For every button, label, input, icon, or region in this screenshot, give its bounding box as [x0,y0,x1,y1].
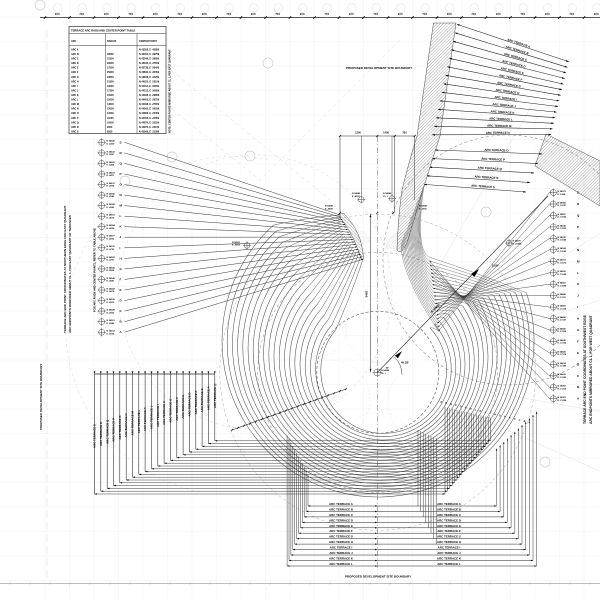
svg-text:700: 700 [569,12,574,16]
svg-text:15000: 15000 [107,99,114,102]
svg-text:700: 700 [128,12,133,16]
svg-text:N 54480: N 54480 [558,293,567,296]
svg-text:ARC H: ARC H [71,80,79,83]
svg-text:700: 700 [422,12,427,16]
svg-text:N 54626: N 54626 [107,161,116,164]
svg-text:ARC A: ARC A [71,49,79,52]
svg-text:L: L [120,214,122,218]
svg-text:ARC TERRACE D: ARC TERRACE D [188,393,192,417]
svg-text:N 54563: N 54563 [107,256,116,259]
svg-text:N 54640: N 54640 [383,192,392,195]
svg-text:ARC TERRACE L: ARC TERRACE L [437,562,461,566]
svg-text:H: H [120,256,122,260]
svg-text:700: 700 [177,12,182,16]
svg-text:N 54579: N 54579 [513,240,522,243]
svg-text:N 54568: N 54568 [558,201,567,204]
svg-text:S: S [120,140,122,144]
svg-text:ARC TERRACE D: ARC TERRACE D [329,518,353,522]
svg-text:E -11020: E -11020 [558,217,568,219]
svg-text:940: 940 [594,12,599,16]
svg-text:N 54524: N 54524 [558,247,567,250]
svg-text:E: E [120,288,122,292]
svg-text:12000: 12000 [107,112,114,115]
svg-text:E -11111: E -11111 [558,297,567,299]
svg-text:N: N [577,248,579,252]
svg-text:N 54640: N 54640 [107,140,116,143]
svg-text:940: 940 [104,12,109,16]
svg-text:E -11059: E -11059 [558,251,568,253]
svg-text:E -4730: E -4730 [107,248,115,251]
svg-text:940: 940 [545,12,550,16]
svg-text:11000: 11000 [107,117,114,120]
svg-text:E -11176: E -11176 [558,354,567,356]
svg-text:ARC TERRACE C: ARC TERRACE C [437,513,462,517]
svg-text:940: 940 [251,12,256,16]
svg-text:E -4434: E -4434 [107,164,115,167]
svg-text:P: P [120,172,122,176]
svg-text:ARC TERRACE D: ARC TERRACE D [437,518,461,522]
svg-text:N 54502: N 54502 [558,270,567,273]
svg-text:N 54535: N 54535 [558,236,567,239]
svg-text:E -11098: E -11098 [558,285,568,287]
svg-text:E -4878: E -4878 [107,290,115,293]
svg-text:ARC ENDPOINTS MIRRORED ABOUT C: ARC ENDPOINTS MIRRORED ABOUT CL 1, FOR W… [589,314,593,424]
svg-text:N 45068, E -21059: N 45068, E -21059 [139,130,160,133]
svg-text:NOTE: CENTER POINTS MIRRORED A: NOTE: CENTER POINTS MIRRORED ABOUT CL 1,… [169,49,172,133]
svg-text:E -4582: E -4582 [107,206,115,209]
svg-text:E -1994: E -1994 [558,193,566,196]
svg-text:700: 700 [402,131,407,135]
svg-text:8500: 8500 [107,130,113,133]
svg-text:ARC O: ARC O [71,112,79,115]
svg-text:E -11215: E -11215 [558,388,568,390]
svg-text:ARC TERRACE J: ARC TERRACE J [150,405,154,429]
svg-text:ARC F: ARC F [71,71,79,74]
svg-text:ARC TERRACE K: ARC TERRACE K [437,557,462,561]
svg-text:ARC TERRACE G: ARC TERRACE G [329,535,354,539]
svg-text:L: L [577,271,579,275]
svg-text:N 44308, E -29859: N 44308, E -29859 [139,94,160,97]
svg-text:ARC TERRACE S: ARC TERRACE S [93,424,97,448]
svg-text:N 44403, E -28759: N 44403, E -28759 [139,99,160,102]
svg-text:ARC TERRACE A: ARC TERRACE A [329,502,354,506]
svg-text:700: 700 [520,12,525,16]
svg-text:ARC TERRACE I: ARC TERRACE I [330,546,353,550]
svg-text:N 54491: N 54491 [558,282,567,285]
svg-text:ARC TERRACE K: ARC TERRACE K [143,406,147,431]
svg-text:ARC J: ARC J [71,89,79,92]
svg-text:F: F [577,339,579,343]
svg-text:N 54447: N 54447 [558,327,567,330]
svg-text:13000: 13000 [107,108,114,111]
svg-text:ARC: ARC [71,40,76,43]
svg-text:ARC TERRACE H: ARC TERRACE H [437,540,461,544]
svg-text:E -11137: E -11137 [558,320,567,322]
svg-text:E -11189: E -11189 [558,366,567,368]
svg-text:E -3660: E -3660 [419,208,427,210]
svg-text:ARC TERRACE K: ARC TERRACE K [329,557,354,561]
svg-text:1200: 1200 [355,131,361,135]
svg-text:E -11046: E -11046 [558,239,568,242]
svg-text:ARC K: ARC K [71,94,79,97]
svg-text:21300: 21300 [107,80,114,83]
svg-text:E -4360: E -4360 [107,143,115,146]
svg-text:N 54425: N 54425 [558,350,567,353]
svg-text:29000: 29000 [107,62,114,65]
svg-text:45°: 45° [386,367,389,370]
svg-text:N 44688, E -25459: N 44688, E -25459 [139,112,160,115]
svg-text:N 54577: N 54577 [107,235,116,238]
svg-text:N 54557: N 54557 [558,213,567,216]
svg-text:N 54521: N 54521 [107,319,116,322]
svg-text:700: 700 [324,12,329,16]
svg-text:CL 1: CL 1 [383,196,388,198]
svg-text:N 43738, E -36459: N 43738, E -36459 [139,67,160,70]
svg-text:N 54513: N 54513 [558,259,567,262]
svg-text:N 54584: N 54584 [107,224,116,227]
svg-text:N 54514: N 54514 [107,330,116,333]
svg-text:H: H [577,317,579,321]
svg-text:N 54469: N 54469 [558,305,567,308]
svg-text:E -11124: E -11124 [558,307,567,310]
svg-text:ARC I: ARC I [71,85,78,88]
svg-text:N 54598: N 54598 [107,203,116,206]
svg-text:ARC TERRACE B: ARC TERRACE B [200,388,204,412]
svg-text:E -4471: E -4471 [107,174,115,177]
svg-text:N 54403: N 54403 [558,373,567,376]
svg-text:15.00°: 15.00° [492,265,499,268]
svg-text:14000: 14000 [107,103,114,106]
svg-text:ARC Q: ARC Q [71,121,79,124]
svg-text:P: P [577,225,579,229]
svg-text:N 43833, E -35359: N 43833, E -35359 [139,71,160,74]
svg-text:N 54619: N 54619 [107,171,116,174]
svg-text:ARC TERRACE N: ARC TERRACE N [486,131,510,135]
svg-text:ARC TERRACE G: ARC TERRACE G [437,535,462,539]
svg-text:17300: 17300 [107,89,114,92]
svg-text:ARC TERRACE E: ARC TERRACE E [329,524,353,528]
svg-text:N: N [120,193,122,197]
svg-text:PROPOSED DEVELOPMENT SITE BOUN: PROPOSED DEVELOPMENT SITE BOUNDARY [39,364,43,430]
svg-text:E -11072: E -11072 [558,263,568,265]
svg-text:S: S [577,191,579,195]
svg-text:E -4508: E -4508 [107,185,115,188]
svg-text:ARC TERRACE M: ARC TERRACE M [131,411,135,436]
svg-text:940: 940 [398,12,403,16]
svg-text:TERRACE ARC END POINT COORDINA: TERRACE ARC END POINT COORDINATES AT SOU… [583,314,587,424]
svg-text:N 54605: N 54605 [107,193,116,196]
svg-text:27300: 27300 [107,67,114,70]
svg-text:E -4841: E -4841 [107,280,115,283]
svg-text:E -4693: E -4693 [107,237,115,240]
svg-text:N 44213, E -30959: N 44213, E -30959 [139,89,160,92]
svg-text:700: 700 [79,12,84,16]
svg-text:ARC TERRACE E: ARC TERRACE E [181,395,185,419]
svg-text:ARC TERRACE L: ARC TERRACE L [329,562,353,566]
svg-text:N 43928, E -34259: N 43928, E -34259 [139,76,160,79]
svg-text:ARC TERRACE C: ARC TERRACE C [329,513,354,517]
svg-text:ARC TERRACE C: ARC TERRACE C [194,390,198,415]
svg-text:N 54458: N 54458 [558,316,567,319]
svg-text:23000: 23000 [107,76,114,79]
svg-text:ARC TERRACE B: ARC TERRACE B [329,507,353,511]
svg-text:E -4360: E -4360 [352,195,360,198]
svg-text:ARC S: ARC S [71,130,79,133]
svg-text:E -4545: E -4545 [107,195,115,198]
svg-text:940: 940 [153,12,158,16]
svg-text:N 54556: N 54556 [107,266,116,269]
svg-text:CL 1: CL 1 [381,373,386,375]
svg-text:ARC TERRACE H: ARC TERRACE H [162,401,166,425]
svg-text:ARC TERRACE B: ARC TERRACE B [437,507,461,511]
svg-text:ARC TERRACE A: ARC TERRACE A [207,385,211,410]
svg-text:45.28°: 45.28° [401,361,409,365]
svg-text:ARC TERRACE I: ARC TERRACE I [438,546,461,550]
svg-text:25300: 25300 [107,71,114,74]
svg-text:PROPOSED DEVELOPMENT SITE BOUN: PROPOSED DEVELOPMENT SITE BOUNDARY [345,575,411,579]
svg-text:10000: 10000 [107,121,114,124]
svg-text:N 44878, E -23259: N 44878, E -23259 [139,121,160,124]
svg-text:N 44783, E -24359: N 44783, E -24359 [139,117,160,120]
svg-text:940: 940 [55,12,60,16]
svg-text:ARC TERRACE Q: ARC TERRACE Q [105,419,109,444]
svg-text:E -11150: E -11150 [558,331,567,333]
svg-text:ARC TERRACE A: ARC TERRACE A [437,502,462,506]
svg-text:700: 700 [471,12,476,16]
svg-text:N 54535: N 54535 [107,298,116,301]
svg-text:ARC P: ARC P [71,117,79,120]
svg-text:PROPOSED DEVELOPMENT SITE BOUN: PROPOSED DEVELOPMENT SITE BOUNDARY [346,66,412,70]
svg-text:ARC D: ARC D [71,62,79,65]
svg-text:N 44973, E -22159: N 44973, E -22159 [139,126,160,129]
svg-text:ARC B: ARC B [71,53,79,56]
svg-text:ARC TERRACE L: ARC TERRACE L [137,409,141,433]
svg-text:TERRACE ARC RADII AND CENTER P: TERRACE ARC RADII AND CENTER POINT TABLE [71,29,135,33]
svg-text:E -11007: E -11007 [558,205,568,207]
svg-text:ARC TERRACE O: ARC TERRACE O [118,415,122,440]
svg-text:TERRACE ARC END POINT COORDINA: TERRACE ARC END POINT COORDINATES AT NOR… [63,205,67,333]
svg-text:ARC TERRACE J: ARC TERRACE J [329,551,353,555]
svg-text:E -11228: E -11228 [558,400,568,402]
svg-text:E -4952: E -4952 [107,311,115,314]
svg-text:ARC R: ARC R [71,126,79,129]
svg-text:N 54392: N 54392 [558,385,567,388]
svg-text:ARC L: ARC L [71,99,79,102]
svg-text:15000: 15000 [107,94,114,97]
svg-text:E -4915: E -4915 [107,301,115,304]
svg-text:N 54640: N 54640 [352,192,361,195]
svg-text:FOR ARC RADII AND CENTER POINT: FOR ARC RADII AND CENTER POINTS, REFER T… [93,228,97,312]
svg-text:N 44593, E -26559: N 44593, E -26559 [139,108,160,111]
svg-text:N 43358, E -40859: N 43358, E -40859 [139,49,160,52]
svg-text:N 54381: N 54381 [558,396,567,399]
svg-text:N 54612: N 54612 [107,182,116,185]
svg-text:ARC TERRACE P: ARC TERRACE P [112,418,116,442]
svg-text:700: 700 [275,12,280,16]
svg-text:ARC ENDPOINTS MIRRORED ABOUT C: ARC ENDPOINTS MIRRORED ABOUT CL 1, FOR E… [68,215,72,333]
svg-text:N 54547: N 54547 [325,205,334,208]
svg-text:ARC M: ARC M [71,103,79,106]
svg-text:ARC TERRACE N: ARC TERRACE N [124,414,128,438]
svg-text:N 54591: N 54591 [107,214,116,217]
svg-text:ARC TERRACE F: ARC TERRACE F [437,529,461,533]
svg-text:9000: 9000 [107,126,113,129]
svg-text:700: 700 [226,12,231,16]
svg-text:E -10994: E -10994 [513,242,523,245]
svg-text:ARC TERRACE H: ARC TERRACE H [329,540,353,544]
svg-text:E -4397: E -4397 [107,153,115,156]
svg-text:N 43548, E -38659: N 43548, E -38659 [139,58,160,61]
svg-text:E -4767: E -4767 [107,259,115,262]
svg-text:E -4619: E -4619 [107,216,115,219]
svg-text:ARC TERRACE F: ARC TERRACE F [329,529,353,533]
svg-text:RADIUS: RADIUS [107,40,117,43]
svg-text:ARC TERRACE J: ARC TERRACE J [437,551,461,555]
svg-text:N 54546: N 54546 [558,224,567,227]
svg-text:N 54579: N 54579 [558,190,567,193]
svg-text:N 54633: N 54633 [107,150,116,153]
svg-text:N 54640: N 54640 [419,205,428,208]
svg-text:E -4804: E -4804 [107,269,115,272]
svg-text:1400: 1400 [383,131,389,135]
svg-text:E -8994: E -8994 [232,244,240,247]
svg-text:ARC TERRACE G: ARC TERRACE G [169,398,173,423]
svg-text:940: 940 [300,12,305,16]
svg-text:E -11033: E -11033 [558,228,568,230]
svg-text:E -11163: E -11163 [558,343,567,345]
svg-text:ARC C: ARC C [71,58,79,61]
svg-text:ARC G: ARC G [71,76,79,79]
svg-text:N 54528: N 54528 [107,309,116,312]
svg-text:E: E [577,351,579,355]
svg-text:N 43453, E -39759: N 43453, E -39759 [139,53,160,56]
svg-text:ARC E: ARC E [71,67,79,70]
svg-text:940: 940 [447,12,452,16]
svg-text:31300: 31300 [107,58,114,61]
svg-text:940: 940 [349,12,354,16]
svg-text:E -11085: E -11085 [558,274,568,276]
svg-text:E -5026: E -5026 [107,333,115,335]
svg-text:ARC TERRACE F: ARC TERRACE F [175,397,179,421]
svg-text:19000: 19000 [107,85,114,88]
svg-text:33000: 33000 [107,53,114,56]
svg-text:N 44118, E -32059: N 44118, E -32059 [139,85,160,88]
svg-text:N 43643, E -37559: N 43643, E -37559 [139,62,160,65]
svg-text:N 54211: N 54211 [232,241,241,244]
svg-text:ARC TERRACE @: ARC TERRACE @ [213,383,217,408]
svg-text:ARC N: ARC N [71,108,79,111]
svg-text:5460: 5460 [365,290,369,297]
svg-text:ARC TERRACE I: ARC TERRACE I [156,404,160,427]
svg-text:E -4988: E -4988 [325,207,333,210]
svg-text:N 54570: N 54570 [107,245,116,248]
svg-text:N 54542: N 54542 [107,287,116,290]
svg-text:N 54414: N 54414 [558,362,567,365]
svg-text:ARC TERRACE E: ARC TERRACE E [437,524,461,528]
svg-text:CENTER POINT: CENTER POINT [139,40,157,43]
svg-text:700: 700 [373,12,378,16]
svg-text:F: F [120,278,122,282]
svg-text:ARC TERRACE M: ARC TERRACE M [487,124,512,129]
svg-text:940: 940 [496,12,501,16]
svg-text:N 44023, E -33159: N 44023, E -33159 [139,80,160,83]
svg-text:N 54549: N 54549 [107,277,116,280]
svg-text:ARC TERRACE R: ARC TERRACE R [99,421,103,446]
svg-text:E -4656: E -4656 [107,227,115,230]
svg-text:E -4989: E -4989 [107,322,115,325]
svg-text:N 54436: N 54436 [558,339,567,342]
svg-text:N 44498, E -27659: N 44498, E -27659 [139,103,160,106]
svg-text:E -11202: E -11202 [558,377,568,379]
svg-text:940: 940 [202,12,207,16]
